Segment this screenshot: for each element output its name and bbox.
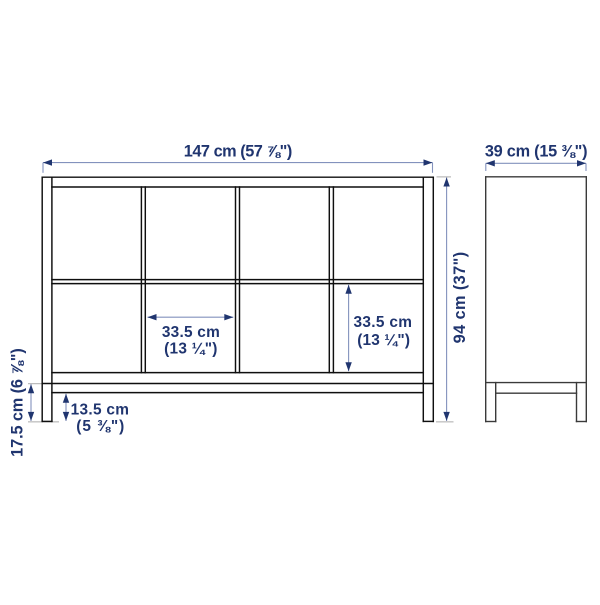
svg-text:(13 ¼"): (13 ¼") xyxy=(357,332,410,349)
svg-text:33.5 cm: 33.5 cm xyxy=(353,314,412,331)
svg-text:(13 ¼"): (13 ¼") xyxy=(164,341,217,358)
svg-text:39 cm (15 ⅜"): 39 cm (15 ⅜") xyxy=(485,143,588,161)
svg-text:94 cm (37"): 94 cm (37") xyxy=(451,252,469,344)
svg-text:13.5 cm: 13.5 cm xyxy=(71,402,129,419)
svg-text:(5 ⅜"): (5 ⅜") xyxy=(76,418,124,435)
svg-text:33.5 cm: 33.5 cm xyxy=(162,324,220,341)
svg-text:147 cm (57 ⅞"): 147 cm (57 ⅞") xyxy=(184,142,293,160)
svg-text:17.5 cm (6 ⅞"): 17.5 cm (6 ⅞") xyxy=(9,348,27,457)
